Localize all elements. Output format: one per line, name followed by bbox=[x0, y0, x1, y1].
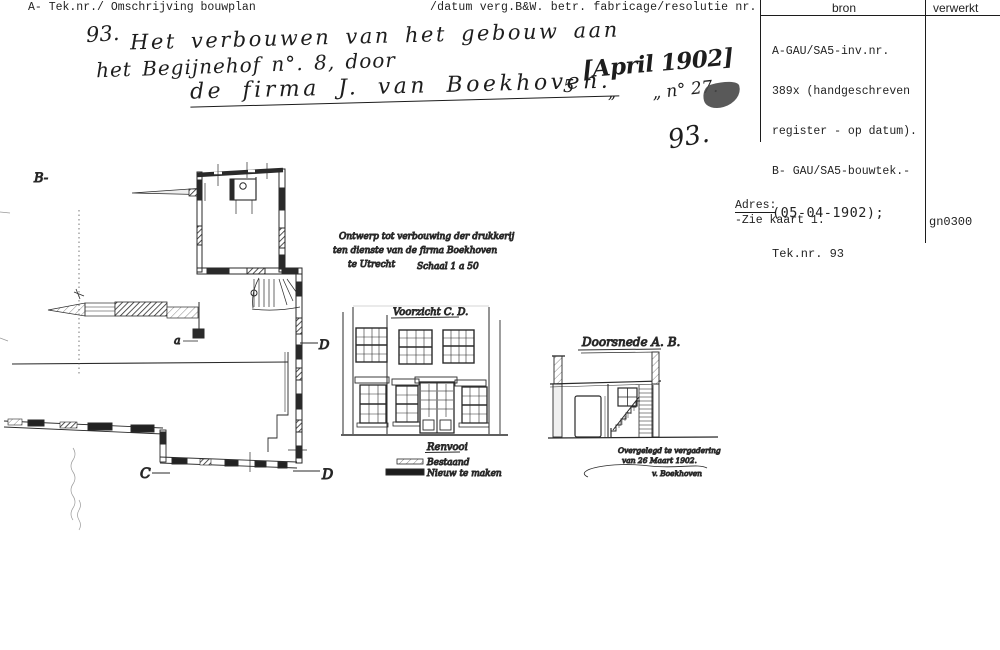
section-door bbox=[575, 396, 601, 437]
cross-section: Doorsnede A. B. bbox=[548, 335, 721, 478]
legend-swatch-nieuw bbox=[386, 469, 424, 475]
legend-swatch-bestaand bbox=[397, 459, 423, 464]
elevation-door bbox=[420, 382, 454, 433]
section-signature: v. Boekhoven bbox=[652, 469, 702, 478]
archive-document-scan: A- Tek.nr./ Omschrijving bouwplan /datum… bbox=[0, 0, 1000, 650]
table-border-middle bbox=[925, 0, 926, 243]
elevation-note-scale: Schaal 1 a 50 bbox=[417, 262, 479, 272]
scan-code: gn0300 bbox=[929, 215, 972, 229]
plan-label-d-top: D bbox=[318, 338, 330, 353]
hw-date-prefix: 5 bbox=[563, 76, 574, 97]
section-note-line1: Overgelegd te vergadering bbox=[618, 446, 721, 455]
table-col-bron: bron bbox=[832, 1, 856, 15]
adres-label: Adres: bbox=[735, 199, 776, 213]
hw-item-number: 93. bbox=[85, 21, 120, 47]
legend-title: Renvooi bbox=[426, 442, 468, 453]
elevation-note-line2: ten dienste van de firma Boekhoven bbox=[333, 246, 497, 256]
hw-ditto-mark: „ bbox=[608, 84, 616, 102]
table-header-rule bbox=[760, 15, 1000, 16]
source-line: B- GAU/SA5-bouwtek.- bbox=[772, 165, 917, 179]
source-line: A-GAU/SA5-inv.nr. bbox=[772, 45, 917, 59]
header-left-label: A- Tek.nr./ Omschrijving bouwplan bbox=[28, 1, 256, 14]
header-middle-label: /datum verg.B&W. betr. fabricage/resolut… bbox=[430, 1, 757, 14]
source-reference-block: A-GAU/SA5-inv.nr. 389x (handgeschreven r… bbox=[772, 19, 917, 287]
front-elevation: Ontwerp tot verbouwing der drukkerij ten… bbox=[333, 232, 514, 479]
plan-label-c: C bbox=[140, 466, 151, 482]
plan-label-d-bottom: D bbox=[321, 467, 333, 483]
hw-big-number: 93. bbox=[666, 119, 712, 156]
plan-label-a: a bbox=[174, 334, 181, 347]
elevation-note-line3: te Utrecht bbox=[348, 260, 395, 270]
table-col-verwerkt: verwerkt bbox=[933, 1, 978, 15]
elevation-legend: Renvooi Bestaand Nieuw te maken bbox=[386, 442, 502, 479]
legend-label-nieuw: Nieuw te maken bbox=[426, 469, 502, 479]
plan-label-b: B- bbox=[33, 171, 48, 186]
elevation-upper-windows bbox=[356, 328, 474, 364]
section-note-line2: van 26 Maart 1902. bbox=[622, 456, 697, 465]
table-border-left bbox=[760, 0, 761, 142]
plan-window-wall bbox=[4, 419, 163, 434]
section-title: Doorsnede A. B. bbox=[581, 335, 680, 349]
section-stair bbox=[611, 385, 653, 437]
adres-value: -Zie kaart 1. bbox=[735, 214, 825, 227]
source-line: register - op datum). bbox=[772, 125, 917, 139]
elevation-title: Voorzicht C. D. bbox=[393, 307, 468, 318]
plan-stair-upper bbox=[251, 278, 300, 310]
elevation-note-line1: Ontwerp tot verbouwing der drukkerij bbox=[339, 232, 514, 242]
legend-label-bestaand: Bestaand bbox=[426, 458, 470, 468]
floor-plan: B- bbox=[0, 162, 333, 530]
source-line: 389x (handgeschreven bbox=[772, 85, 917, 99]
source-line-teknr: Tek.nr. 93 bbox=[772, 247, 917, 261]
bouwplan-drawing: B- bbox=[0, 160, 740, 550]
